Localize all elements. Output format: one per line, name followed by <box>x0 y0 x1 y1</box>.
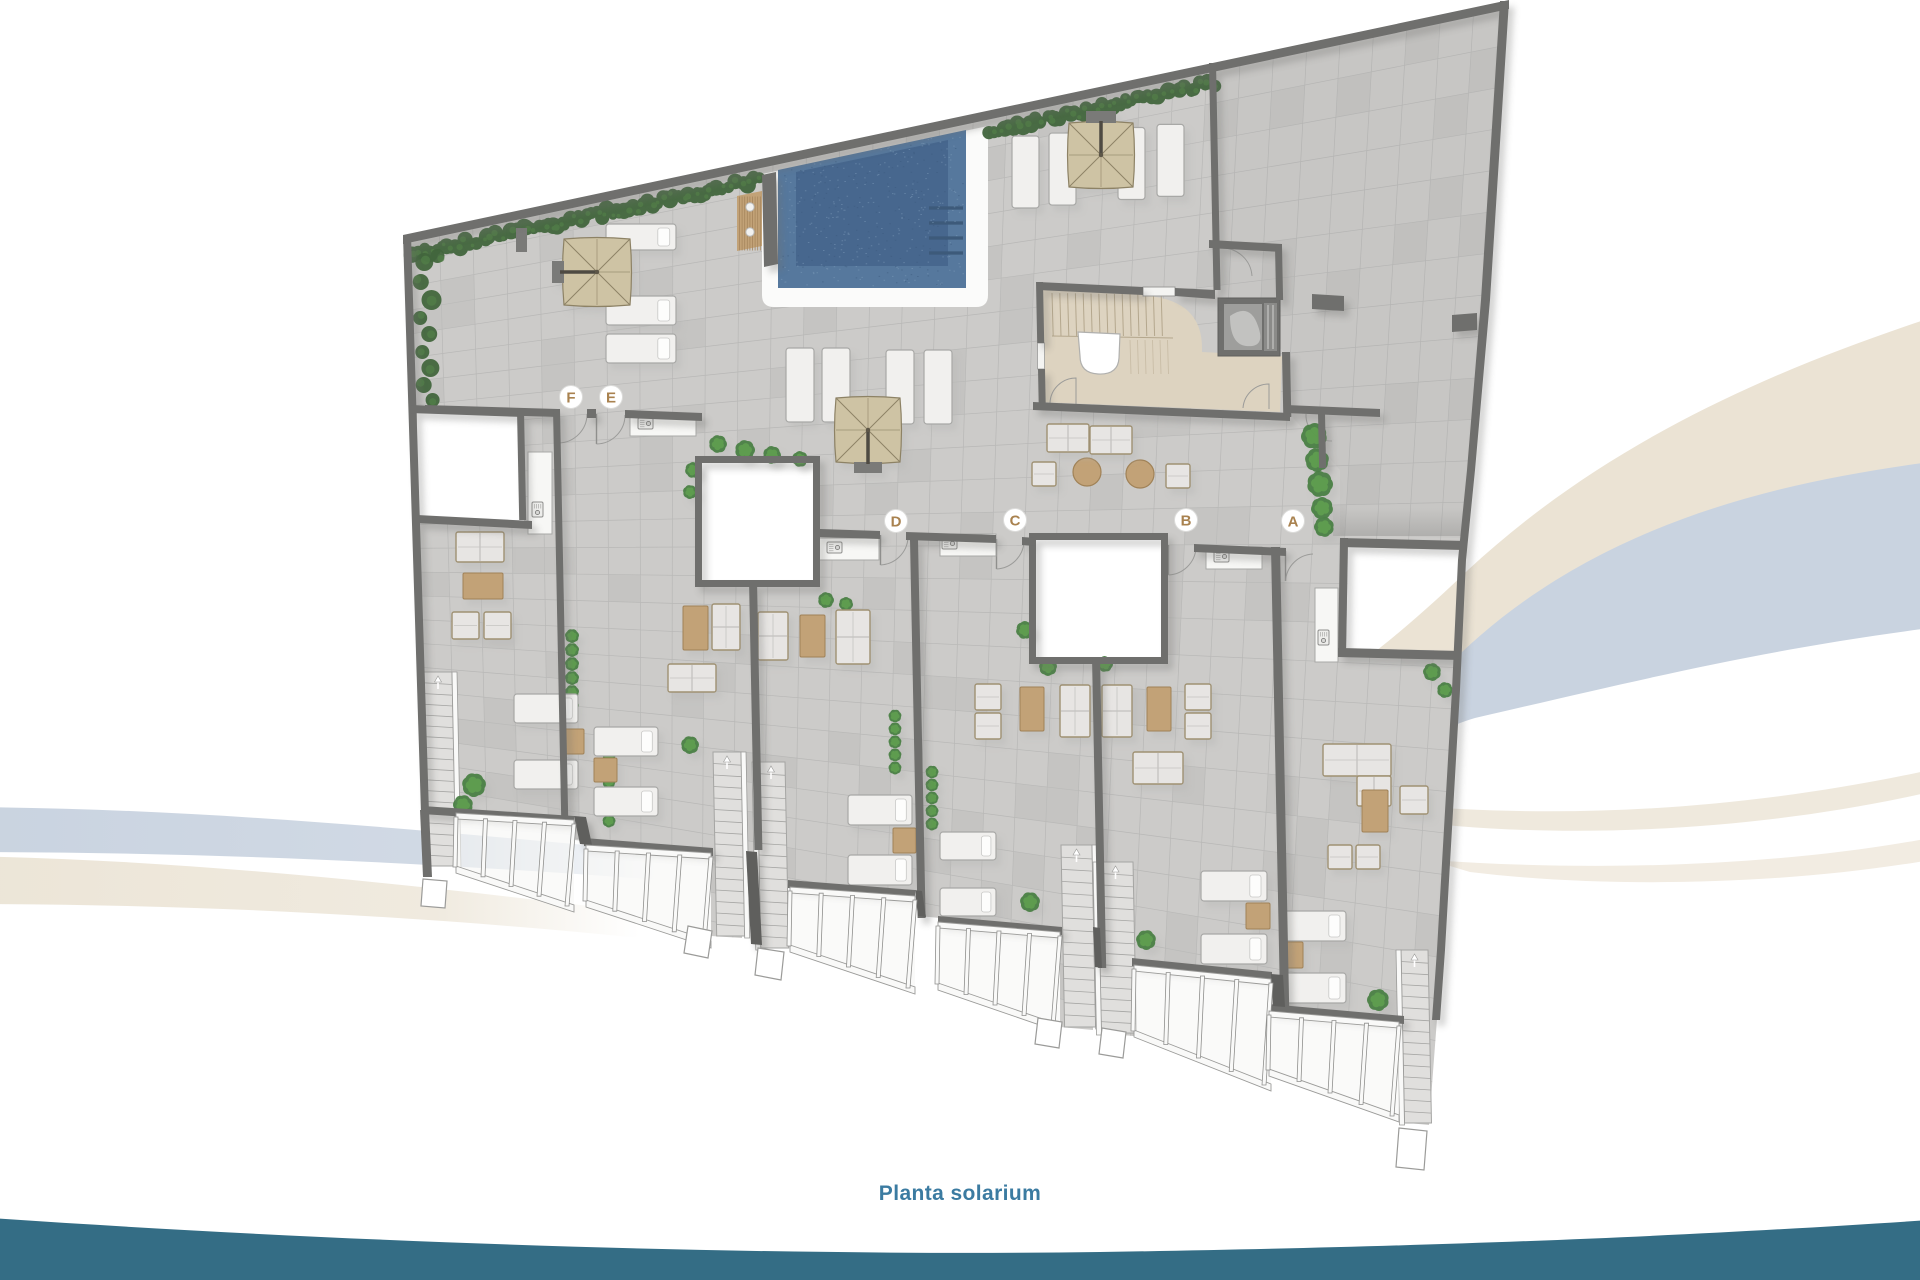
svg-text:D: D <box>891 514 902 531</box>
svg-text:A: A <box>1288 514 1299 531</box>
svg-text:F: F <box>566 390 575 407</box>
svg-text:B: B <box>1181 513 1192 530</box>
svg-text:C: C <box>1010 513 1021 530</box>
svg-text:E: E <box>606 390 616 407</box>
